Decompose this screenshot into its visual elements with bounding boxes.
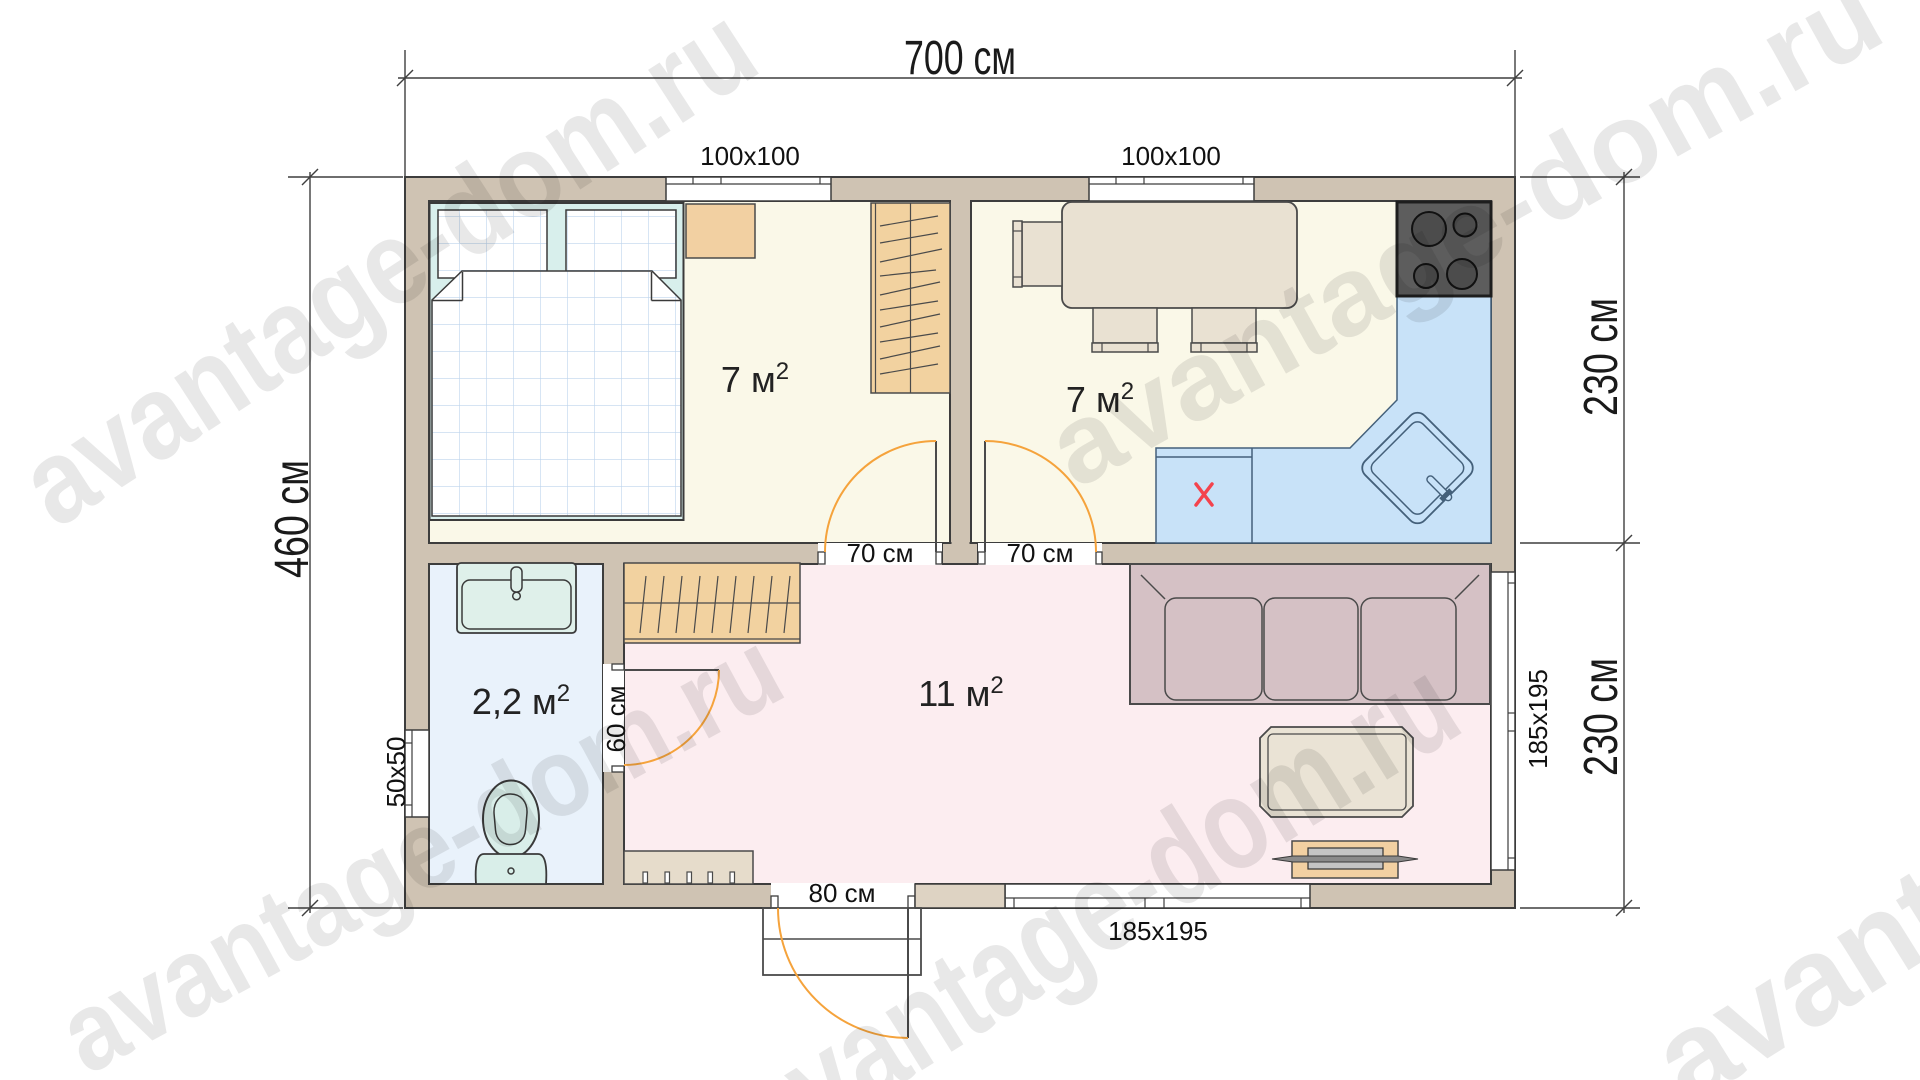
svg-text:80 см: 80 см	[808, 878, 875, 908]
svg-text:70 см: 70 см	[846, 538, 913, 568]
svg-text:185x195: 185x195	[1523, 669, 1553, 769]
svg-text:460 см: 460 см	[266, 460, 319, 578]
svg-text:230 см: 230 см	[1575, 658, 1628, 776]
svg-text:100x100: 100x100	[1121, 141, 1221, 171]
svg-text:700 см: 700 см	[904, 32, 1016, 85]
svg-text:70 см: 70 см	[1006, 538, 1073, 568]
svg-text:100x100: 100x100	[700, 141, 800, 171]
svg-text:avantage-dom.ru: avantage-dom.ru	[1629, 479, 1920, 1080]
svg-text:230 см: 230 см	[1575, 298, 1628, 416]
